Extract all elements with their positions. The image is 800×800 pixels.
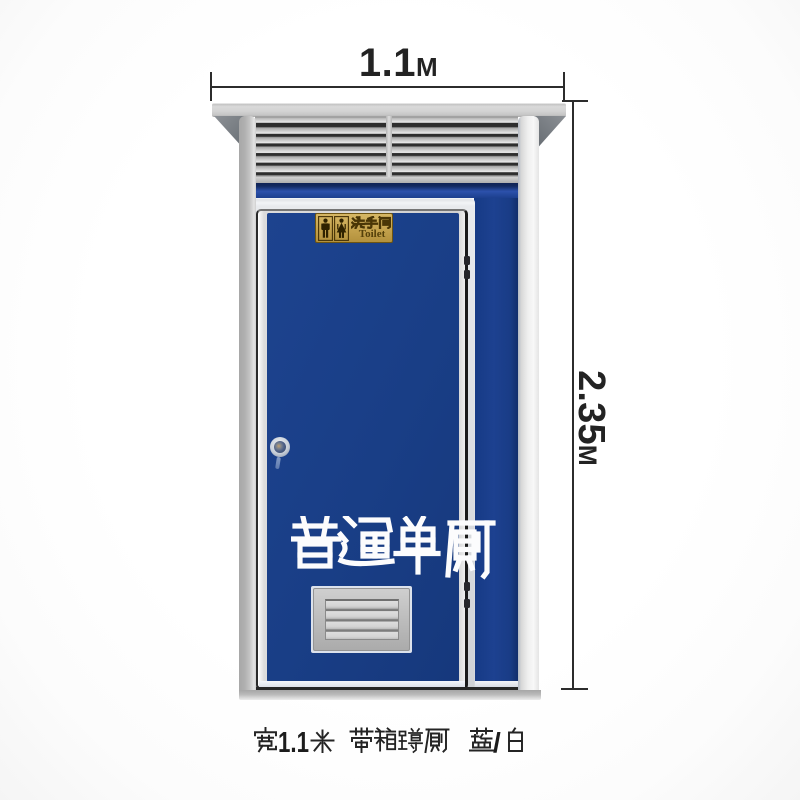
svg-text:/: / — [493, 727, 501, 758]
svg-text:1.1: 1.1 — [278, 727, 309, 758]
